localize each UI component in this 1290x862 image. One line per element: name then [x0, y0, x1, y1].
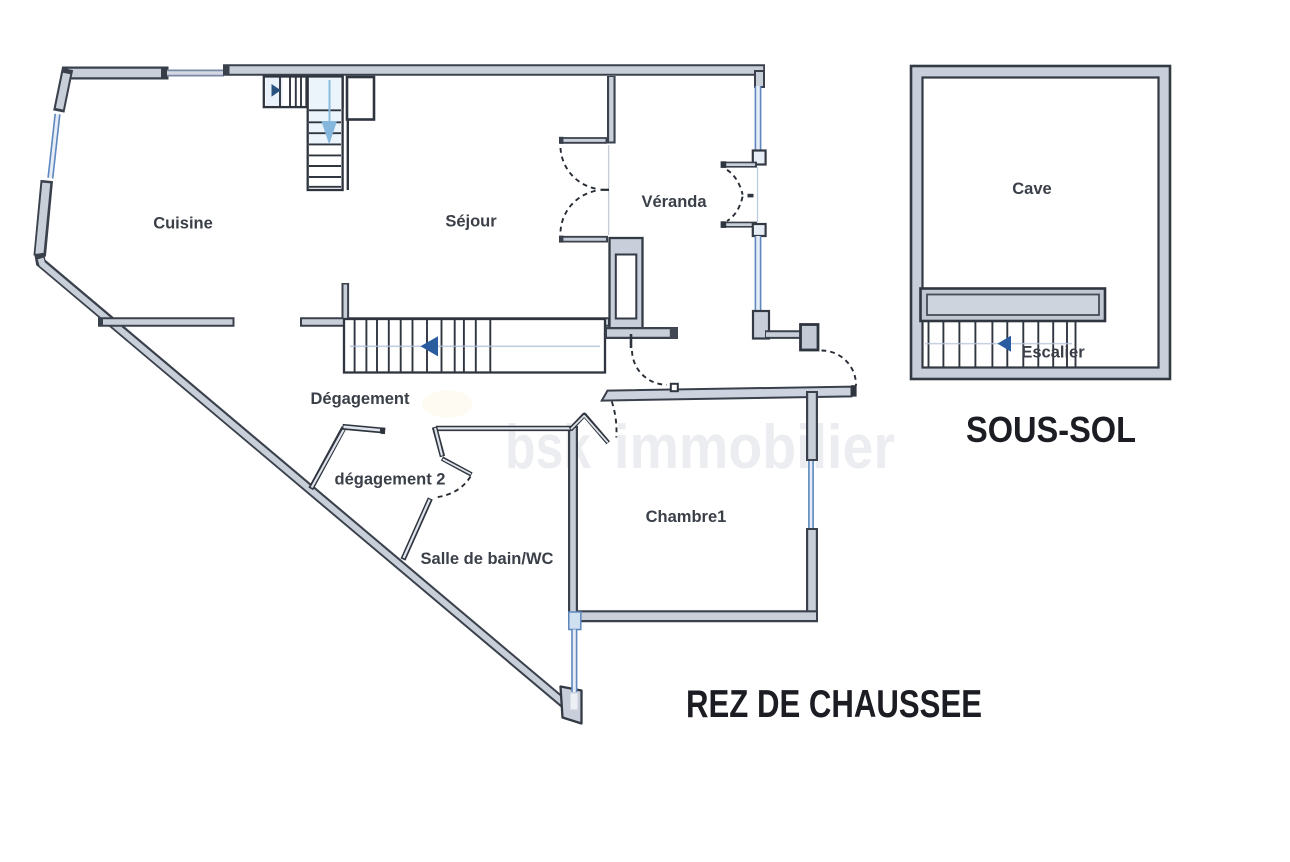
svg-text:Dégagement: Dégagement [310, 390, 410, 408]
svg-text:Salle de bain/WC: Salle de bain/WC [421, 550, 554, 568]
svg-text:immobilier: immobilier [614, 413, 895, 482]
svg-text:SOUS-SOL: SOUS-SOL [966, 409, 1136, 450]
svg-text:Cuisine: Cuisine [153, 215, 213, 233]
svg-text:Escalier: Escalier [1021, 344, 1085, 362]
svg-text:Chambre1: Chambre1 [646, 508, 727, 526]
svg-text:Véranda: Véranda [641, 193, 707, 211]
svg-text:REZ DE CHAUSSEE: REZ DE CHAUSSEE [686, 683, 982, 726]
svg-text:Séjour: Séjour [445, 213, 497, 231]
svg-text:Cave: Cave [1012, 180, 1051, 198]
svg-text:dégagement 2: dégagement 2 [335, 471, 446, 489]
